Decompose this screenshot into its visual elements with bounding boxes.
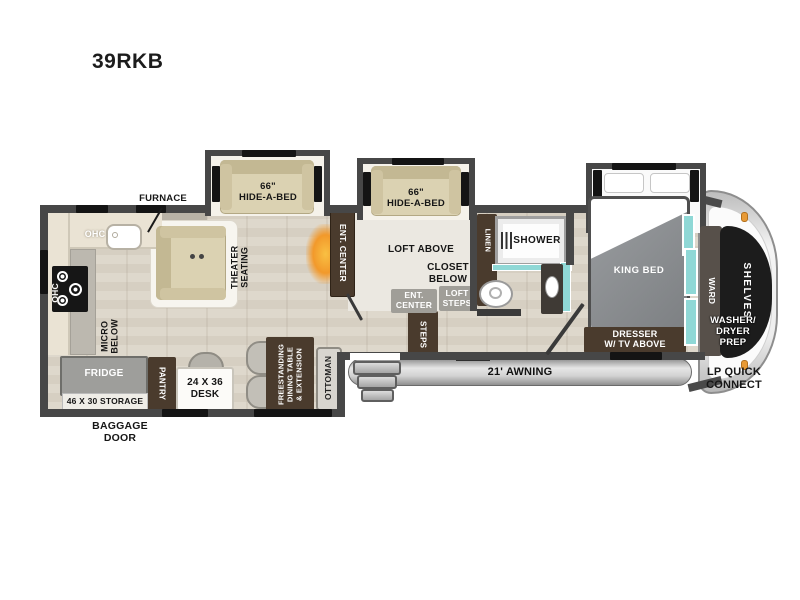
closet-below-label: CLOSET BELOW <box>416 262 480 285</box>
loft-above-label: LOFT ABOVE <box>376 244 466 256</box>
desk-window <box>162 409 208 417</box>
storage-label: 46 X 30 STORAGE <box>62 397 148 407</box>
bath-counter <box>477 309 521 316</box>
slide2-top-window <box>392 158 444 165</box>
bedroom-window <box>610 352 662 360</box>
cap-marker-light-top <box>741 212 748 222</box>
pantry-label: PANTRY <box>157 360 166 408</box>
fridge-label: FRIDGE <box>62 368 146 380</box>
kitchen-window-1 <box>76 205 108 213</box>
bedslide-right-window <box>690 170 699 202</box>
bath-bedroom-wall <box>566 213 574 265</box>
pillow-left <box>604 173 644 193</box>
slide2-left-window <box>363 172 371 206</box>
toilet-bowl <box>489 287 502 299</box>
pillow-right <box>650 173 690 193</box>
theater-cupholder-1 <box>190 254 195 259</box>
annex-right-wall <box>337 352 345 414</box>
page-title: 39RKB <box>92 50 212 74</box>
hide-a-bed-2-label: 66" HIDE-A-BED <box>372 188 460 210</box>
shower-label: SHOWER <box>510 235 564 247</box>
slide1-top-window <box>242 150 296 157</box>
dresser-label: DRESSER W/ TV ABOVE <box>584 329 686 350</box>
king-bed-label: KING BED <box>598 266 680 277</box>
ent-center-loft-box: ENT. CENTER <box>391 289 437 313</box>
burner-2 <box>69 283 82 296</box>
ent-center-loft-label: ENT. CENTER <box>396 291 432 311</box>
entry-door-opening <box>350 353 400 360</box>
bedroom-teal-cabinet-2 <box>684 248 698 296</box>
hide-a-bed-1-label: 66" HIDE-A-BED <box>222 182 314 204</box>
theater-cupholder-2 <box>199 254 204 259</box>
vanity-sink <box>545 276 559 298</box>
ottoman-label: OTTOMAN <box>324 346 334 410</box>
bedslide-top-window <box>612 163 676 170</box>
left-wall-window <box>40 250 48 294</box>
linen-label: LINEN <box>483 220 492 260</box>
floorplan-canvas: 39RKB <box>0 0 800 600</box>
top-wall-left <box>40 205 205 213</box>
lp-quick-connect-label: LP QUICK CONNECT <box>694 366 774 391</box>
awning-label: 21' AWNING <box>488 366 553 379</box>
loft-steps-label: LOFT STEPS <box>443 289 472 309</box>
dining-table-label: FREESTANDING DINING TABLE & EXTENSION <box>277 339 304 411</box>
slide2-right-window <box>461 172 469 206</box>
ent-center-fireplace-label: ENT. CENTER <box>337 211 347 295</box>
theater-armrest-bottom <box>160 288 226 300</box>
theater-seating-label: THEATER SEATING <box>230 227 251 307</box>
slide1-right-window <box>314 166 322 202</box>
washer-dryer-prep-label: WASHER/ DRYER PREP <box>696 316 770 349</box>
ohc-side-label: OHC <box>51 278 61 308</box>
baggage-door-label: BAGGAGE DOOR <box>87 420 153 444</box>
kitchen-sink <box>106 224 142 250</box>
ohc-rear-label: OHC <box>82 229 108 239</box>
sink-faucet-dot <box>112 232 118 238</box>
theater-armrest-top <box>160 226 226 238</box>
ward-label: WARD <box>706 271 716 311</box>
micro-below-label: MICRO BELOW <box>100 313 121 359</box>
sofa1-back <box>220 160 314 174</box>
left-wall <box>40 205 48 417</box>
top-wall-right <box>475 205 586 213</box>
slide1-left-window <box>212 166 220 202</box>
entry-step-1 <box>353 361 401 375</box>
furnace-label: FURNACE <box>134 194 192 205</box>
steps-label: STEPS <box>418 313 427 357</box>
desk-label: 24 X 36 DESK <box>178 377 232 400</box>
entry-step-2 <box>357 375 397 389</box>
entry-step-3 <box>361 389 394 402</box>
sofa2-back <box>371 166 461 179</box>
